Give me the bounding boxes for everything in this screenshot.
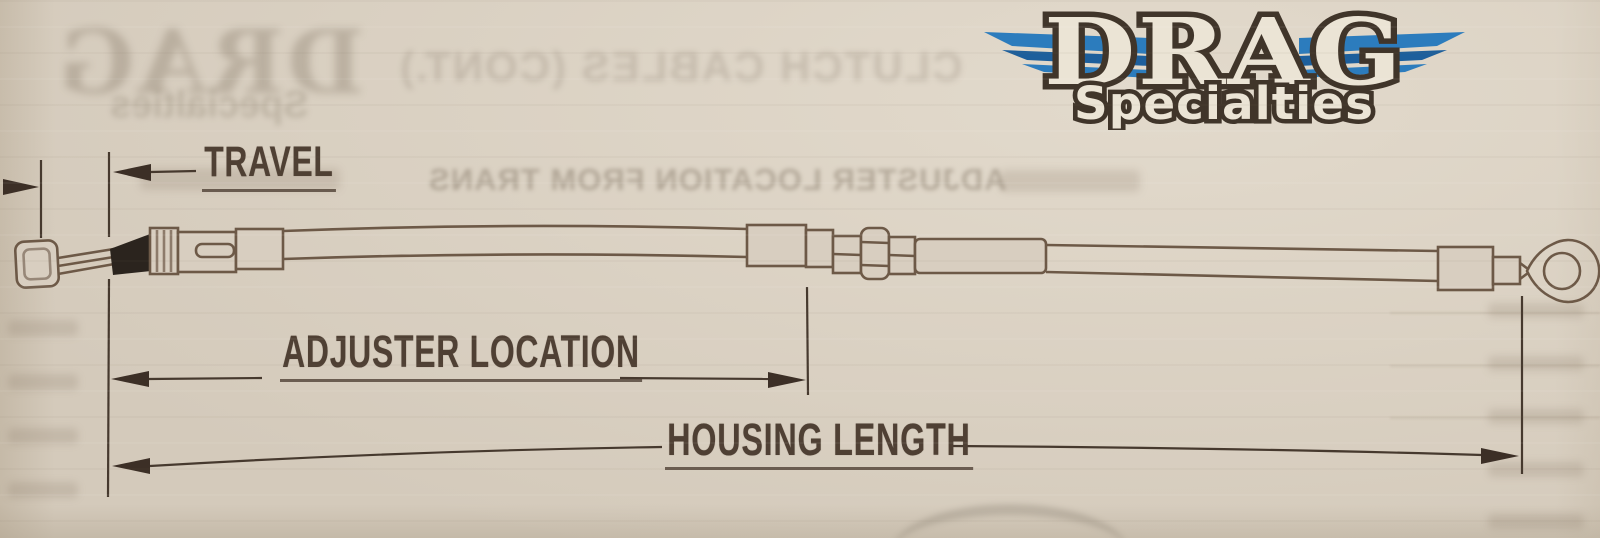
clevis-eyelet-end — [1520, 240, 1599, 302]
arrowhead-left — [113, 164, 151, 181]
housing-length-label: HOUSING LENGTH — [665, 417, 973, 470]
mid-cable-adjuster-nuts — [747, 225, 1046, 279]
arrowhead-right — [3, 179, 39, 195]
threaded-adjuster — [150, 228, 283, 274]
scanned-catalog-page: DRAG Specialties CLUTCH CABLES (CONT.) A… — [0, 0, 1600, 538]
travel-label: TRAVEL — [202, 141, 336, 192]
arrowhead-left — [111, 371, 149, 387]
logo-sub-text: Specialties — [1074, 77, 1374, 130]
arrowhead-right — [1481, 448, 1519, 464]
travel-dimension — [3, 152, 196, 497]
arrowhead-left — [112, 458, 150, 474]
drag-specialties-logo: DRAG Specialties — [972, 0, 1477, 130]
end-ferrule — [110, 234, 151, 275]
adjuster-location-label: ADJUSTER LOCATION — [280, 329, 642, 382]
cable-end-barrel — [15, 240, 59, 288]
arrowhead-right — [768, 372, 806, 388]
housing-ferrule — [1438, 247, 1520, 290]
